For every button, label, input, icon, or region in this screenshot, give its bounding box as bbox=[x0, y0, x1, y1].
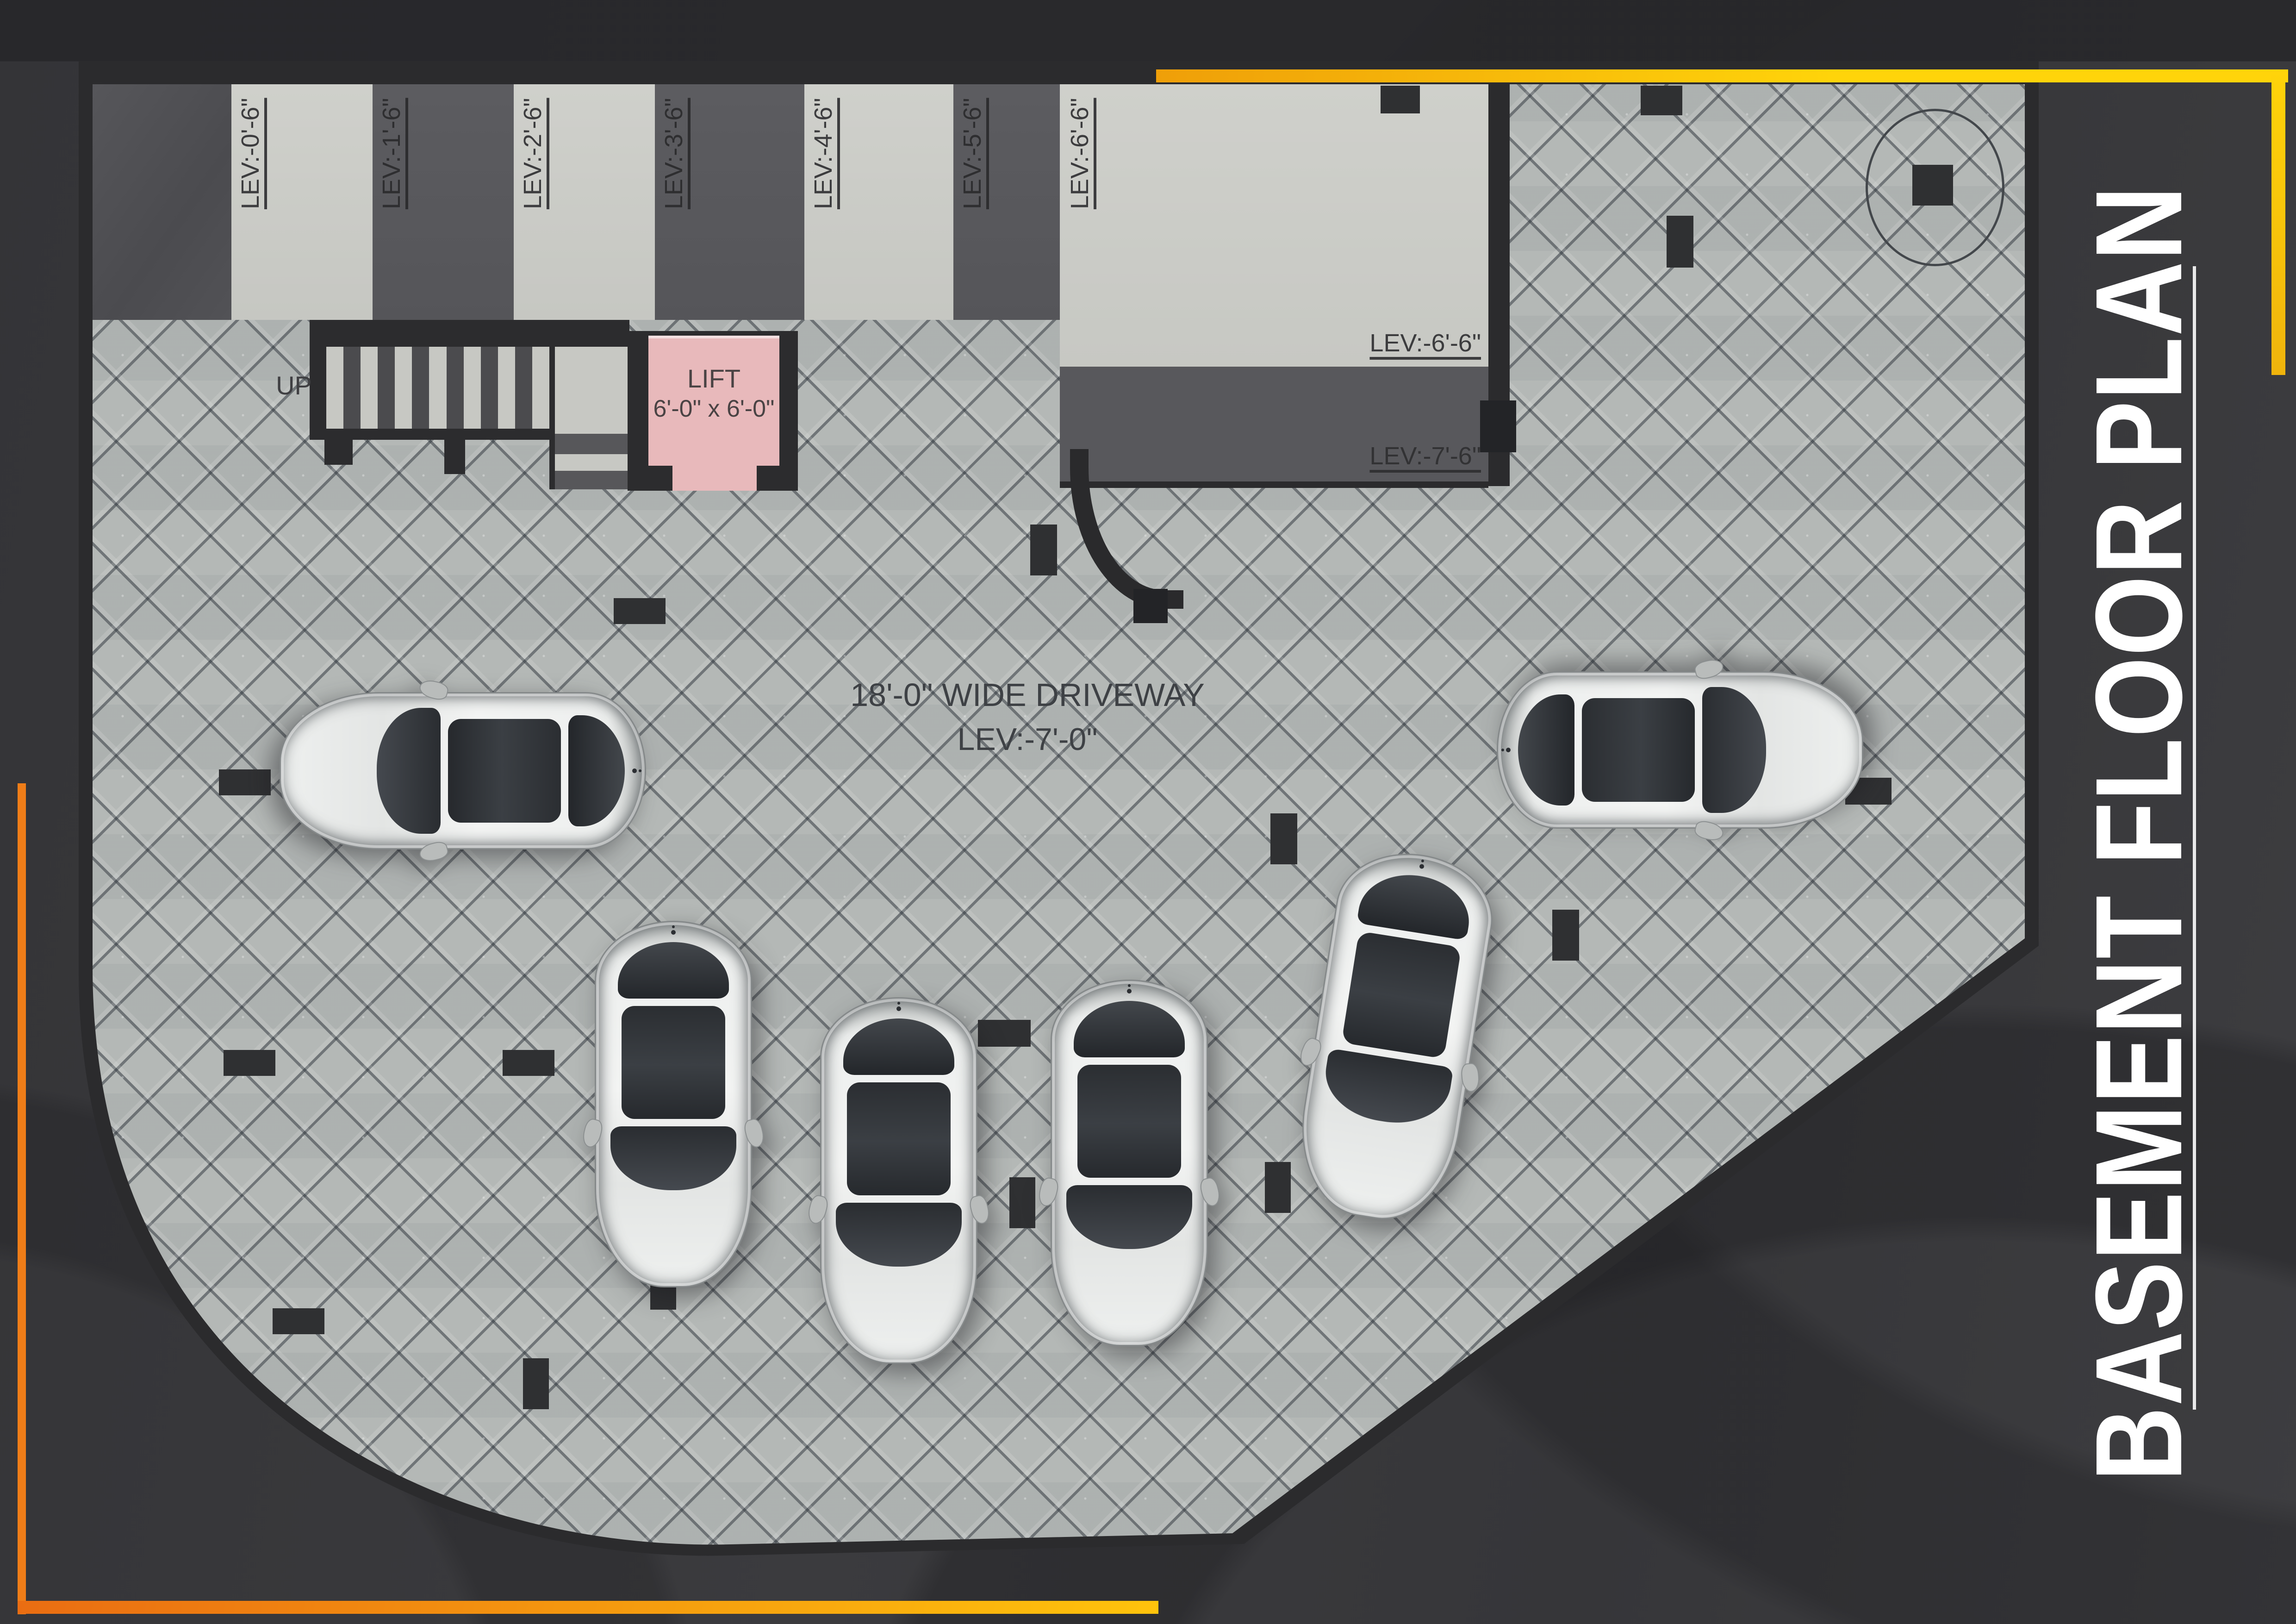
car-top-view bbox=[1495, 667, 1865, 833]
lift-left-wall bbox=[628, 331, 648, 491]
column-marker bbox=[1641, 86, 1682, 115]
stair-tread bbox=[447, 347, 464, 429]
ramp-level-label: LEV:-0'-6" bbox=[236, 98, 265, 209]
lift-size: 6'-0" x 6'-0" bbox=[648, 394, 779, 424]
car-sunroof bbox=[1341, 931, 1461, 1059]
car-antenna bbox=[632, 768, 637, 773]
column-marker bbox=[224, 1050, 275, 1076]
basement-floor-plan-page: { "title": "BASEMENT FLOOR PLAN", "label… bbox=[0, 0, 2296, 1624]
stairs-up-label: UP bbox=[264, 370, 324, 400]
accent-line-top-right bbox=[2271, 69, 2285, 375]
car-antenna bbox=[896, 1006, 901, 1011]
ramp-section: LEV:-2'-6" bbox=[514, 84, 655, 320]
ramp-section: LEV:-3'-6" bbox=[655, 84, 804, 320]
floor-plan: LEV:-0'-6"LEV:-1'-6"LEV:-2'-6"LEV:-3'-6"… bbox=[79, 61, 2039, 1561]
wall-column bbox=[1480, 400, 1516, 452]
column-marker bbox=[614, 598, 666, 624]
column-marker bbox=[1270, 813, 1297, 864]
column-marker bbox=[523, 1358, 549, 1409]
stair-wall-stub bbox=[324, 440, 353, 465]
car-antenna bbox=[671, 930, 676, 935]
stair-tread bbox=[326, 347, 343, 429]
car-top-view bbox=[590, 919, 757, 1289]
driveway-level-text: LEV:-7'-0" bbox=[824, 718, 1231, 762]
column-marker bbox=[1030, 525, 1057, 575]
page-title: BASEMENT FLOOR PLAN bbox=[2068, 185, 2210, 1481]
ramp-level-label: LEV:-3'-6" bbox=[660, 98, 688, 209]
stair-tread bbox=[343, 347, 361, 429]
ramp-level-label: LEV:-5'-6" bbox=[958, 98, 987, 209]
ramp-section: LEV:-5'-6" bbox=[953, 84, 1060, 320]
car-antenna bbox=[1506, 748, 1511, 752]
ramp-level-label: LEV:-4'-6" bbox=[809, 98, 838, 209]
car-sunroof bbox=[622, 1006, 725, 1119]
stair-tread bbox=[429, 347, 446, 429]
column-marker bbox=[1552, 910, 1579, 961]
stair-tread bbox=[412, 347, 429, 429]
title-divider-line bbox=[2193, 266, 2196, 1410]
room-level-label: LEV:-6'-6" bbox=[1263, 329, 1481, 357]
stair-landing-step bbox=[555, 434, 628, 454]
column-marker bbox=[273, 1308, 324, 1334]
stair-landing-step bbox=[555, 454, 628, 471]
driveway-width-text: 18'-0" WIDE DRIVEWAY bbox=[824, 672, 1231, 718]
upper-level-slab bbox=[1060, 84, 1488, 367]
car-sunroof bbox=[847, 1082, 951, 1195]
column-marker bbox=[1912, 165, 1953, 206]
accent-line-bottom bbox=[18, 1601, 1158, 1614]
ramp-level-label: LEV:-2'-6" bbox=[518, 98, 547, 209]
stair-tread bbox=[498, 347, 515, 429]
curved-wall-post bbox=[1133, 589, 1168, 623]
lift-door-jamb bbox=[648, 466, 672, 491]
lift-name: LIFT bbox=[648, 363, 779, 394]
ramp-section: LEV:-4'-6" bbox=[804, 84, 953, 320]
room-level-vertical-label: LEV:-6'-6" bbox=[1065, 98, 1094, 209]
column-marker bbox=[1667, 216, 1693, 268]
car-antenna bbox=[1127, 989, 1132, 993]
car-sunroof bbox=[1077, 1065, 1181, 1178]
column-marker bbox=[978, 1020, 1031, 1047]
column-marker bbox=[1009, 1177, 1035, 1228]
column-marker bbox=[503, 1050, 554, 1076]
stairs-landing-divider bbox=[549, 347, 555, 489]
lift-label: LIFT 6'-0" x 6'-0" bbox=[648, 363, 779, 424]
car-top-view bbox=[278, 687, 648, 854]
stair-tread bbox=[378, 347, 395, 429]
stair-tread bbox=[361, 347, 378, 429]
stair-wall-stub bbox=[444, 440, 465, 474]
stair-treads bbox=[326, 347, 549, 429]
column-marker bbox=[219, 769, 271, 795]
car-sunroof bbox=[1582, 698, 1695, 802]
stair-tread bbox=[395, 347, 412, 429]
ramp-section bbox=[93, 84, 231, 320]
stairs-bottom-wall bbox=[310, 429, 549, 440]
lift-door-jamb bbox=[757, 466, 798, 491]
stair-tread bbox=[464, 347, 481, 429]
accent-line-left bbox=[18, 783, 26, 1614]
car-top-view bbox=[1046, 978, 1213, 1348]
lift-door-opening bbox=[672, 466, 757, 491]
stairs-top-wall bbox=[310, 320, 629, 347]
ramp-level-label: LEV:-1'-6" bbox=[377, 98, 406, 209]
entry-ramp: LEV:-0'-6"LEV:-1'-6"LEV:-2'-6"LEV:-3'-6"… bbox=[93, 84, 1060, 320]
car-top-view bbox=[815, 995, 982, 1366]
car-sunroof bbox=[448, 719, 561, 823]
accent-line-top bbox=[1156, 69, 2288, 82]
driveway-label: 18'-0" WIDE DRIVEWAY LEV:-7'-0" bbox=[824, 672, 1231, 762]
stair-landing bbox=[555, 347, 628, 434]
stair-landing-step bbox=[555, 471, 628, 489]
stair-tread bbox=[532, 347, 549, 429]
ramp-section: LEV:-0'-6" bbox=[231, 84, 373, 320]
column-marker bbox=[1381, 86, 1420, 113]
stair-tread bbox=[481, 347, 498, 429]
ramp-section: LEV:-1'-6" bbox=[373, 84, 514, 320]
lower-level-label: LEV:-7'-6" bbox=[1263, 442, 1481, 470]
stair-tread bbox=[515, 347, 532, 429]
